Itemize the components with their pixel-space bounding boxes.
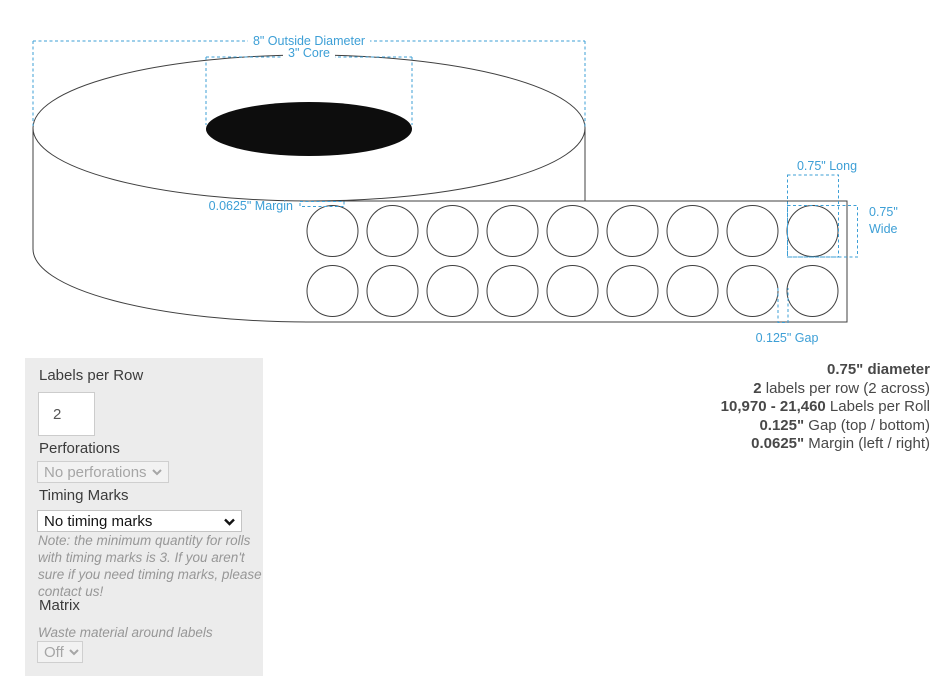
perforations-heading: Perforations xyxy=(39,440,120,457)
roll-core-ellipse xyxy=(206,102,412,156)
label-circle xyxy=(367,266,418,317)
roll-diagram xyxy=(0,0,943,360)
label-circle xyxy=(367,206,418,257)
label-circle xyxy=(427,266,478,317)
perforations-select[interactable]: No perforations xyxy=(37,461,169,483)
label-circle xyxy=(667,206,718,257)
page: 8" Outside Diameter 3" Core 0.0625" Marg… xyxy=(0,0,943,680)
matrix-select-value: Off xyxy=(44,644,64,661)
timing-marks-heading: Timing Marks xyxy=(39,487,128,504)
label-circle xyxy=(727,206,778,257)
chevron-down-icon xyxy=(224,517,235,526)
options-panel: Labels per Row Perforations No perforati… xyxy=(25,358,263,676)
spec-summary: 0.75" diameter 2 labels per row (2 acros… xyxy=(721,361,930,454)
label-circle xyxy=(427,206,478,257)
summary-line: 2 labels per row (2 across) xyxy=(721,380,930,399)
label-wide-label: 0.75" Wide xyxy=(869,204,915,237)
label-circle xyxy=(607,266,658,317)
core-label: 3" Core xyxy=(206,46,412,60)
timing-marks-note: Note: the minimum quantity for rolls wit… xyxy=(38,532,264,600)
label-circle xyxy=(547,266,598,317)
label-circle xyxy=(307,266,358,317)
label-circle xyxy=(787,206,838,257)
label-circle xyxy=(487,206,538,257)
labels-per-row-input[interactable] xyxy=(38,392,95,436)
chevron-down-icon xyxy=(152,468,162,476)
label-circle xyxy=(487,266,538,317)
label-long-label: 0.75" Long xyxy=(771,159,883,173)
matrix-select[interactable]: Off xyxy=(37,641,83,663)
label-circle xyxy=(607,206,658,257)
matrix-heading: Matrix xyxy=(39,597,80,614)
label-circle xyxy=(667,266,718,317)
label-circle xyxy=(787,266,838,317)
matrix-description: Waste material around labels xyxy=(38,625,264,640)
timing-marks-select[interactable]: No timing marks xyxy=(37,510,242,532)
summary-line: 0.125" Gap (top / bottom) xyxy=(721,417,930,436)
timing-marks-select-value: No timing marks xyxy=(44,513,152,530)
gap-label: 0.125" Gap xyxy=(727,331,847,345)
label-circle xyxy=(547,206,598,257)
label-circle xyxy=(727,266,778,317)
label-circle xyxy=(307,206,358,257)
chevron-down-icon xyxy=(69,648,79,656)
margin-label: 0.0625" Margin xyxy=(168,199,293,213)
summary-line: 0.0625" Margin (left / right) xyxy=(721,435,930,454)
summary-line: 0.75" diameter xyxy=(721,361,930,380)
summary-line: 10,970 - 21,460 Labels per Roll xyxy=(721,398,930,417)
labels-per-row-heading: Labels per Row xyxy=(39,367,143,384)
perforations-select-value: No perforations xyxy=(44,464,147,481)
